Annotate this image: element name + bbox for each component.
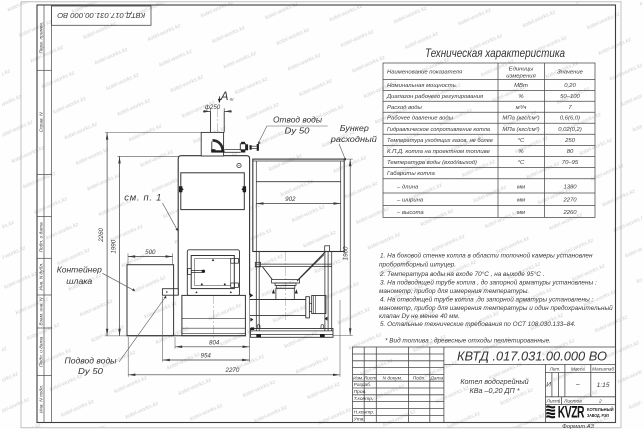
svg-text:2. Температура воды на входе: 2. Температура воды на входе 70°С , на в…	[379, 270, 544, 278]
svg-text:500: 500	[145, 249, 156, 256]
svg-text:расходный: расходный	[330, 135, 378, 144]
svg-text:Формат А3: Формат А3	[562, 424, 594, 430]
svg-text:манометр, прибор для измерения: манометр, прибор для измерения температу…	[379, 304, 613, 312]
svg-text:шлака: шлака	[66, 277, 93, 286]
svg-text:1990: 1990	[110, 239, 117, 253]
svg-text:Взам. инв. N: Взам. инв. N	[38, 297, 44, 325]
svg-text:ш: ш	[230, 96, 234, 101]
svg-text:Температура воды (вход/выход): Температура воды (вход/выход)	[387, 160, 477, 166]
svg-text:Н.контр.: Н.контр.	[354, 409, 375, 415]
svg-text:Изм.: Изм.	[353, 375, 363, 381]
svg-text:250: 250	[564, 138, 576, 144]
svg-text:мм: мм	[517, 184, 525, 190]
svg-text:ЗАВОД. РЭП: ЗАВОД. РЭП	[587, 413, 609, 418]
svg-text:Расход воды: Расход воды	[387, 105, 423, 111]
svg-text:Лист: Лист	[363, 375, 377, 381]
svg-text:902: 902	[285, 196, 296, 203]
svg-text:КВТД .017.031.00.000 ВО: КВТД .017.031.00.000 ВО	[457, 349, 607, 364]
svg-text:– высота: – высота	[396, 210, 424, 216]
svg-text:50–100: 50–100	[560, 94, 580, 100]
svg-text:3. На подводящей трубе котла: 3. На подводящей трубе котла , до запорн…	[380, 278, 597, 286]
svg-text:Т.контр.: Т.контр.	[354, 396, 374, 402]
svg-text:KVZR: KVZR	[558, 403, 585, 421]
svg-text:°С: °С	[518, 160, 525, 166]
svg-text:Инв. N подл.: Инв. N подл.	[38, 385, 44, 413]
svg-text:МПа (кгс/см²): МПа (кгс/см²)	[502, 116, 539, 122]
svg-text:%: %	[518, 149, 523, 155]
svg-text:Дата: Дата	[429, 375, 443, 381]
svg-text:Диапазон рабочего регулировани: Диапазон рабочего регулирования	[386, 94, 484, 100]
svg-text:Dy 50: Dy 50	[285, 126, 311, 135]
svg-text:4. На отводящей трубе котла ,: 4. На отводящей трубе котла ,до запорной…	[380, 296, 593, 304]
svg-text:70–95: 70–95	[562, 160, 579, 166]
svg-text:Температура уходящих газов, не: Температура уходящих газов, не более	[387, 138, 494, 144]
svg-text:2260: 2260	[98, 227, 105, 242]
svg-text:манометр, прибор для измерения: манометр, прибор для измерения температу…	[379, 287, 529, 295]
svg-text:Подвод воды: Подвод воды	[65, 356, 117, 365]
svg-text:Номинальная мощность: Номинальная мощность	[387, 83, 456, 89]
svg-text:Наименование показателя: Наименование показателя	[387, 70, 463, 76]
svg-text:Пров.: Пров.	[354, 389, 367, 395]
svg-text:804: 804	[209, 339, 220, 346]
svg-text:Подп. и дата: Подп. и дата	[38, 222, 44, 252]
svg-text:–: –	[575, 382, 580, 389]
svg-text:Габариты котла: Габариты котла	[387, 171, 435, 177]
svg-text:Масса: Масса	[571, 367, 585, 372]
svg-text:Подп.: Подп.	[413, 375, 426, 381]
svg-text:Значение: Значение	[557, 70, 584, 76]
svg-text:Инв. N дубл.: Инв. N дубл.	[38, 263, 44, 291]
svg-text:Отвод воды: Отвод воды	[273, 116, 322, 125]
svg-text:Лит.: Лит.	[549, 367, 561, 372]
svg-text:1380: 1380	[563, 184, 577, 190]
svg-text:5. Остальные технические треб: 5. Остальные технические требования по О…	[380, 320, 576, 328]
svg-text:мм: мм	[517, 198, 525, 204]
svg-text:А: А	[220, 91, 229, 103]
svg-text:Утв.: Утв.	[354, 416, 365, 422]
svg-text:0,02(0,2): 0,02(0,2)	[558, 127, 582, 133]
svg-text:Справ. N: Справ. N	[38, 112, 44, 133]
svg-text:80: 80	[567, 149, 574, 155]
svg-text:N докум.: N докум.	[383, 375, 403, 381]
svg-text:2: 2	[598, 399, 602, 405]
svg-text:м³/ч: м³/ч	[516, 105, 527, 111]
svg-text:Рабочее давление воды: Рабочее давление воды	[387, 116, 454, 122]
svg-text:– ширина: – ширина	[396, 198, 424, 204]
svg-text:1:15: 1:15	[597, 382, 610, 389]
svg-text:КВТД.017.031.00.000 ВО: КВТД.017.031.00.000 ВО	[57, 11, 145, 20]
svg-text:Бункер: Бункер	[340, 124, 370, 133]
svg-text:1960: 1960	[342, 246, 349, 260]
svg-text:см. п. 1: см. п. 1	[124, 191, 161, 202]
svg-text:КОТЕЛЬНЫЙ: КОТЕЛЬНЫЙ	[587, 407, 614, 412]
svg-text:0,20: 0,20	[564, 83, 576, 89]
svg-text:К.П.Д. котла на проектном топл: К.П.Д. котла на проектном топливе	[387, 149, 491, 155]
svg-text:ф250: ф250	[205, 104, 221, 111]
svg-text:– длина: – длина	[396, 184, 419, 190]
svg-text:Перв. примен.: Перв. примен.	[38, 22, 44, 54]
svg-text:Контейнер: Контейнер	[57, 265, 103, 274]
svg-text:Техническая характеристика: Техническая характеристика	[425, 47, 565, 60]
svg-text:0,6(6,0): 0,6(6,0)	[560, 116, 580, 122]
svg-text:пробоотборный штуцер.: пробоотборный штуцер.	[379, 261, 456, 269]
svg-text:2260: 2260	[562, 210, 577, 216]
svg-text:2270: 2270	[562, 198, 577, 204]
svg-text:%: %	[518, 94, 523, 100]
svg-text:МПа (кгс/см²): МПа (кгс/см²)	[502, 127, 539, 133]
svg-text:1. На боковой стенке котла в: 1. На боковой стенке котла в области топ…	[380, 252, 593, 260]
svg-text:Масштаб: Масштаб	[592, 367, 614, 372]
svg-text:°С: °С	[518, 138, 525, 144]
svg-text:Подп. и дата: Подп. и дата	[38, 336, 44, 366]
svg-text:Гидравлическое сопротивление к: Гидравлическое сопротивление котла	[387, 127, 491, 133]
svg-text:Разраб.: Разраб.	[354, 382, 372, 388]
svg-text:Котел водогрейный: Котел водогрейный	[460, 377, 528, 386]
svg-text:МВт: МВт	[514, 83, 528, 89]
svg-text:Единицы: Единицы	[509, 67, 534, 73]
svg-text:* Вид топлива : древесные от: * Вид топлива : древесные отходы пеллети…	[385, 336, 551, 344]
svg-text:Dy 50: Dy 50	[78, 367, 104, 376]
svg-text:И: И	[546, 382, 551, 389]
svg-text:КВа –0,20 ДП *: КВа –0,20 ДП *	[469, 386, 519, 395]
svg-text:954: 954	[201, 353, 212, 360]
svg-text:измерения: измерения	[506, 74, 536, 80]
svg-text:клапан Dу не менее 40 мм.: клапан Dу не менее 40 мм.	[379, 313, 460, 320]
svg-text:2270: 2270	[225, 367, 240, 374]
svg-text:мм: мм	[517, 210, 525, 216]
